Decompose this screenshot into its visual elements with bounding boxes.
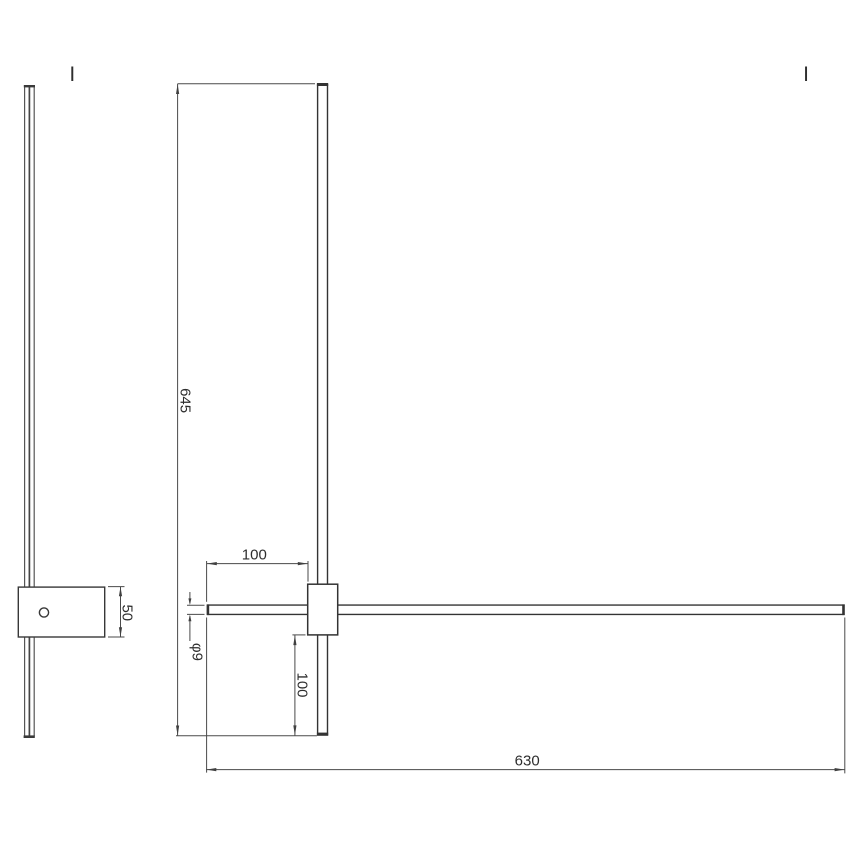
svg-text:I: I	[803, 63, 809, 86]
svg-text:50: 50	[118, 604, 135, 621]
svg-text:100: 100	[294, 672, 311, 697]
svg-text:φ9: φ9	[189, 643, 206, 661]
svg-text:I: I	[69, 63, 75, 86]
svg-text:100: 100	[242, 547, 267, 564]
svg-text:645: 645	[177, 388, 194, 413]
svg-text:630: 630	[515, 752, 540, 769]
